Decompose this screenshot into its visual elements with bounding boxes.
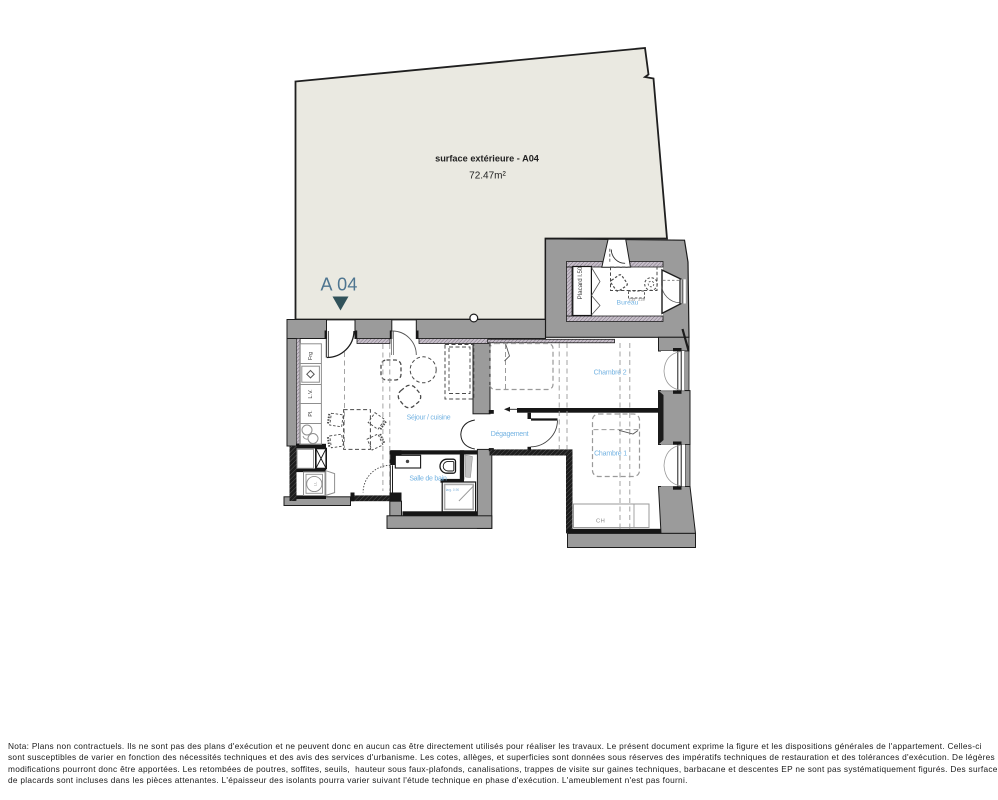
svg-text:A 04: A 04 xyxy=(321,275,358,295)
svg-text:Dégagement: Dégagement xyxy=(491,431,529,438)
svg-text:Chambre 2: Chambre 2 xyxy=(594,370,627,377)
svg-text:L.V.: L.V. xyxy=(308,389,314,399)
svg-text:Chambre 1: Chambre 1 xyxy=(594,450,627,457)
svg-text:Placard l.50: Placard l.50 xyxy=(577,266,584,299)
svg-text:CH: CH xyxy=(596,519,605,525)
svg-text:Salle de bain: Salle de bain xyxy=(409,476,447,483)
svg-text:Pl.: Pl. xyxy=(308,410,314,417)
svg-text:larg. 0.90: larg. 0.90 xyxy=(446,488,460,492)
svg-text:surface extérieure - A04: surface extérieure - A04 xyxy=(435,154,540,164)
svg-text:LL: LL xyxy=(312,481,317,486)
svg-text:72.47m²: 72.47m² xyxy=(469,171,506,182)
svg-text:Bureau: Bureau xyxy=(617,300,639,307)
svg-text:Séjour / cuisine: Séjour / cuisine xyxy=(407,415,451,422)
svg-text:2.26: 2.26 xyxy=(638,298,645,302)
svg-text:Frg: Frg xyxy=(308,352,314,360)
